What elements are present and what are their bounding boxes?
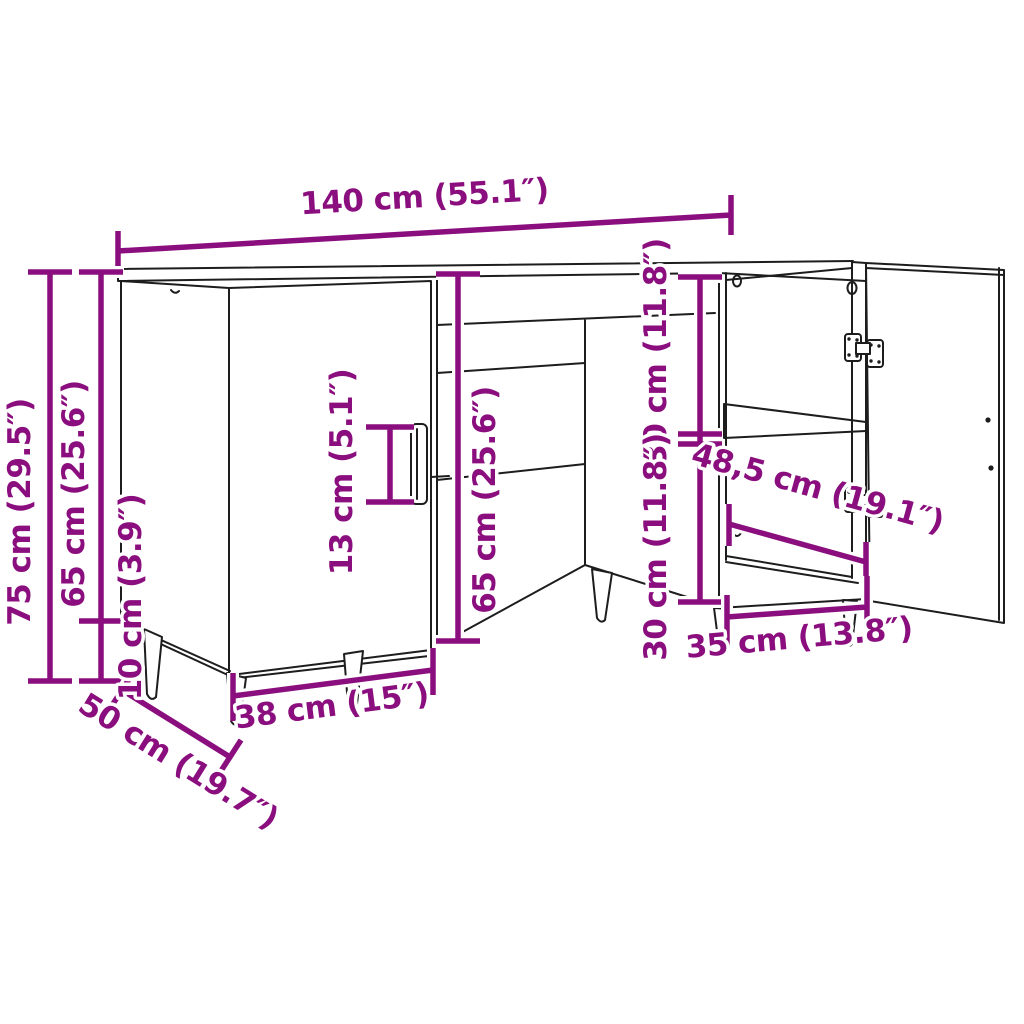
dim-label-width-top: 140 cm (55.1″) (299, 172, 549, 223)
dim-label-leg-height: 10 cm (3.9″) (113, 494, 149, 701)
dimension-diagram: 140 cm (55.1″) 75 cm (29.5″) 65 cm (25.6… (0, 0, 1024, 1024)
diagram-canvas: 140 cm (55.1″) 75 cm (29.5″) 65 cm (25.6… (0, 0, 1024, 1024)
dim-line-inner-depth (729, 504, 866, 584)
right-door-open (866, 263, 1004, 623)
dim-label-height-total: 75 cm (29.5″) (2, 398, 38, 626)
dim-label-compartment-bottom: 30 cm (11.8″) (638, 433, 674, 661)
dim-label-body-left: 65 cm (25.6″) (56, 380, 92, 608)
shelf (724, 404, 866, 438)
dim-label-compartment-top: 30 cm (11.8″) (638, 238, 674, 466)
dim-label-handle: 13 cm (5.1″) (324, 369, 360, 576)
dim-line-handle (366, 427, 414, 502)
dim-label-body-mid: 65 cm (25.6″) (467, 386, 503, 614)
hinge-icon (845, 334, 883, 367)
fitting-marks (171, 290, 854, 562)
cable-hole-icon (733, 276, 741, 287)
